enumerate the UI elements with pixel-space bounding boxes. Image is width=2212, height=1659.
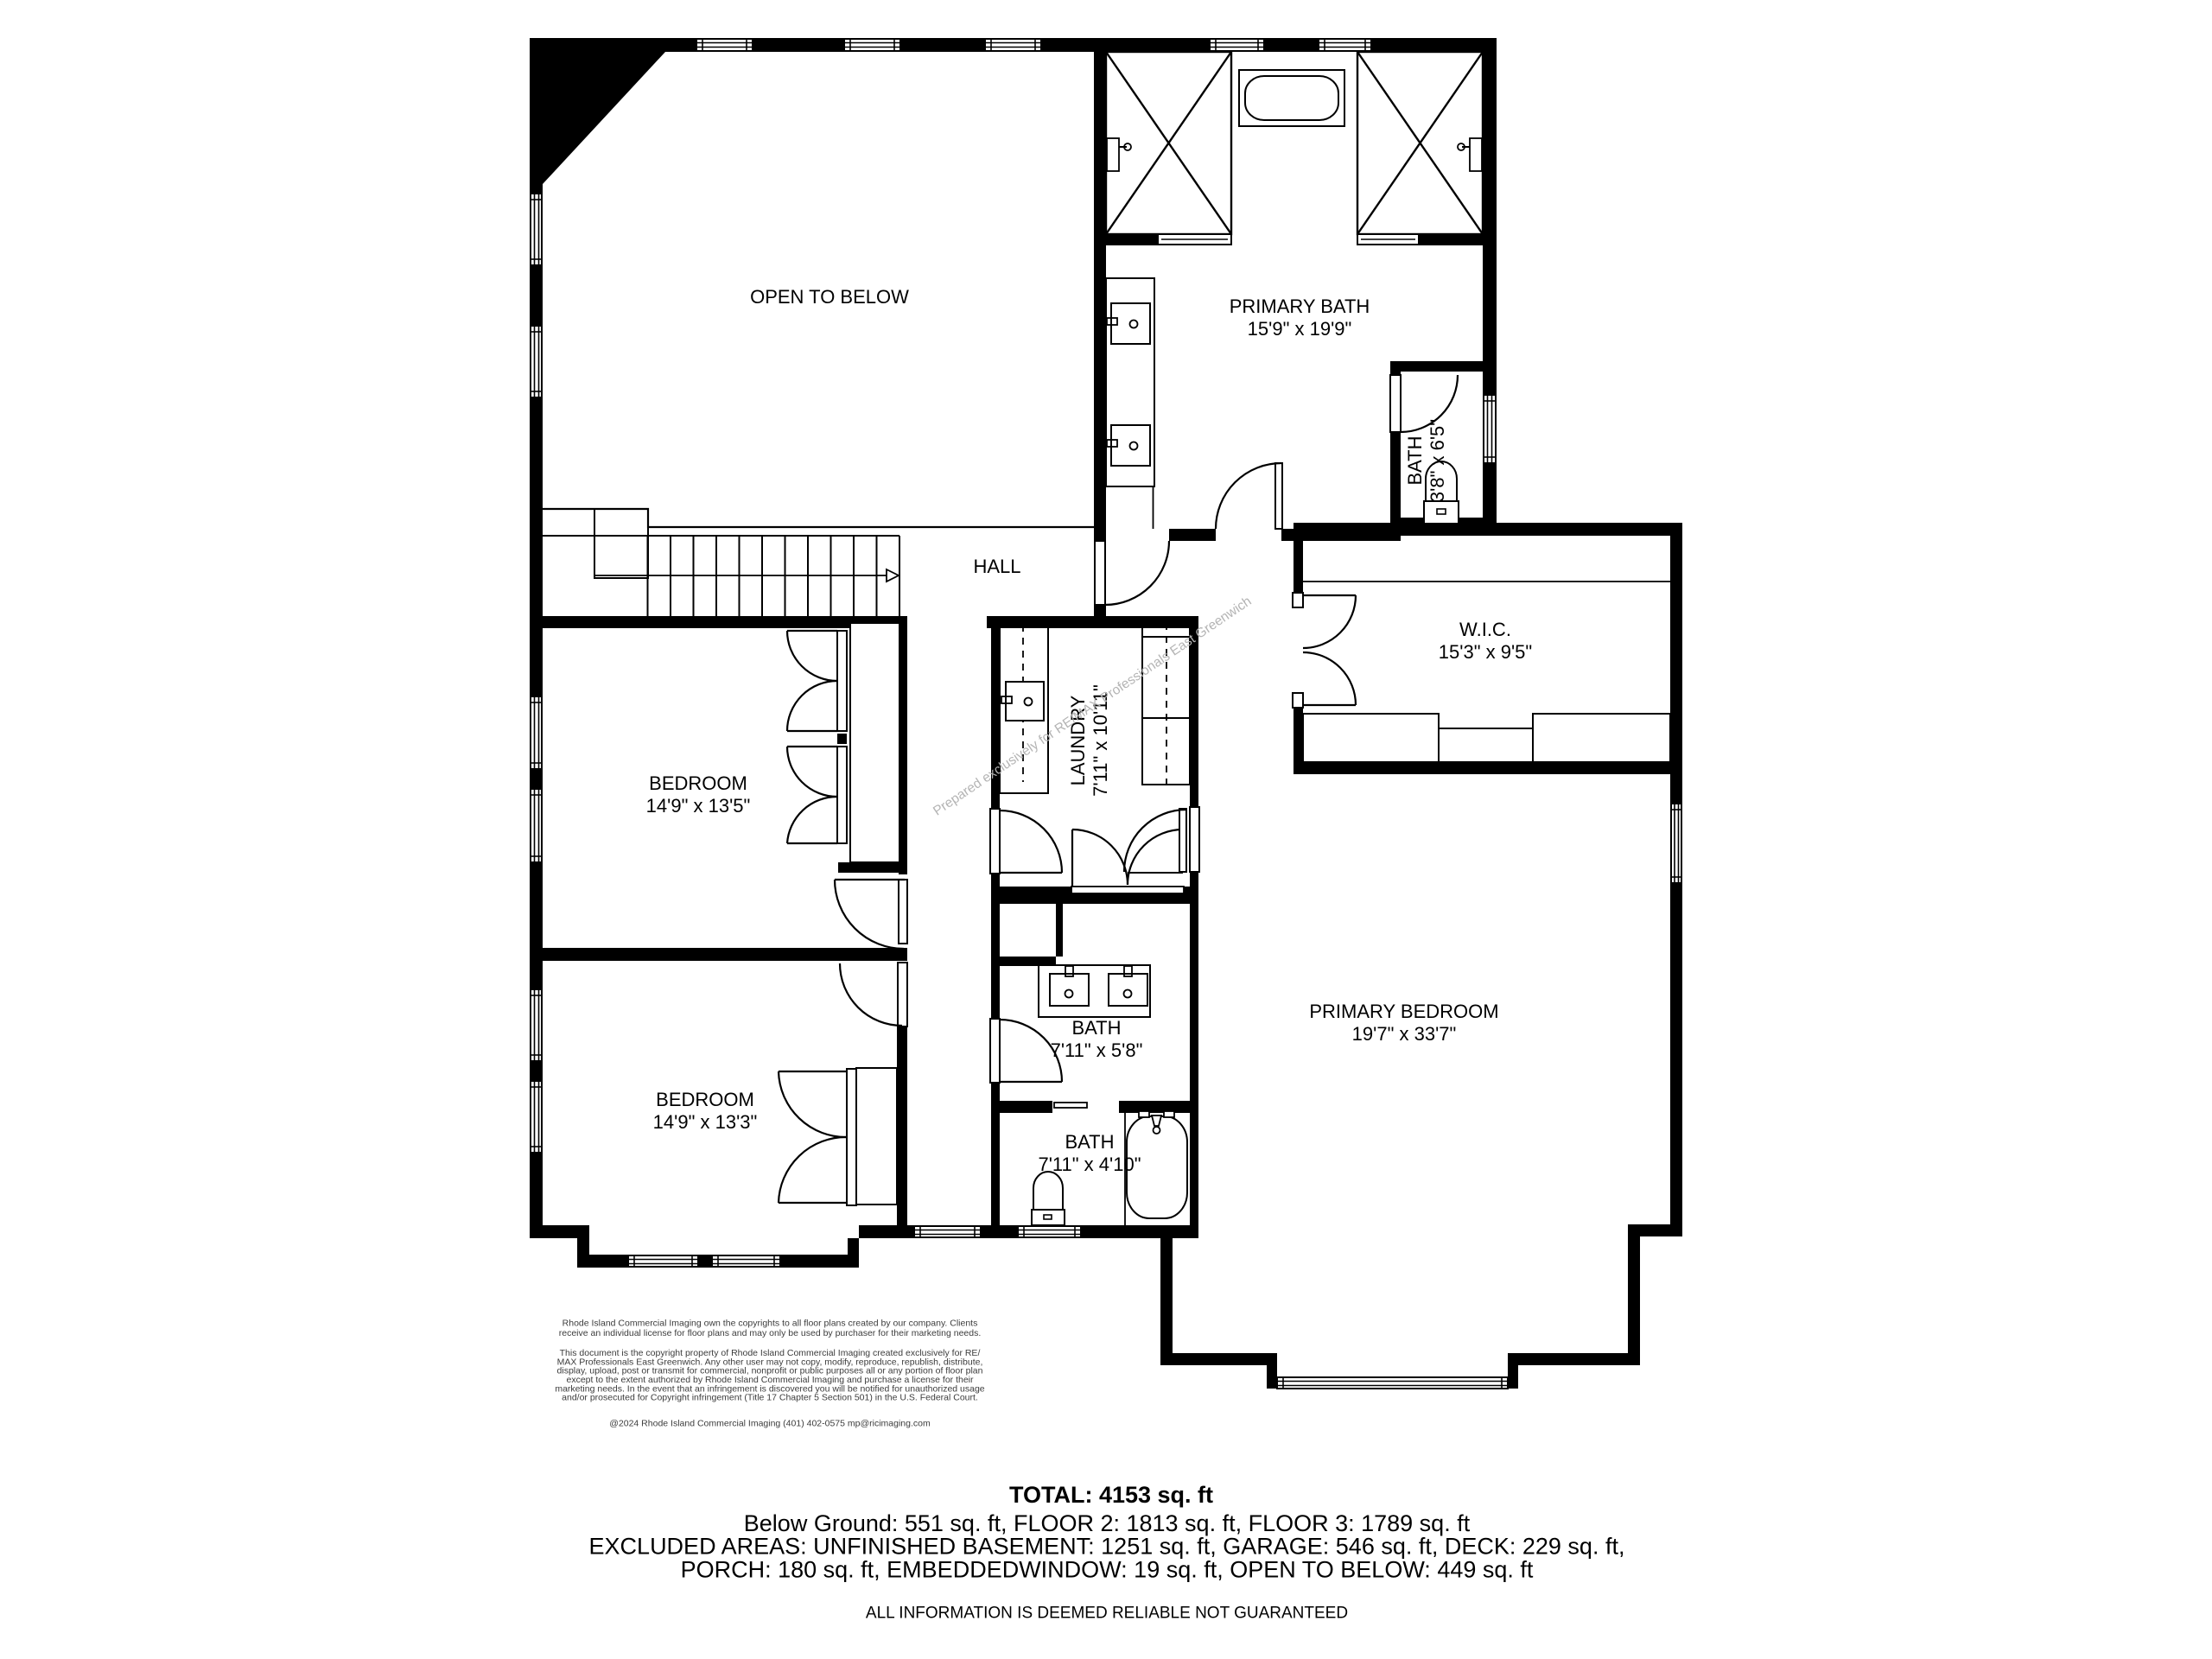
svg-text:@2024 Rhode Island Commercial: @2024 Rhode Island Commercial Imaging (4… <box>609 1419 931 1429</box>
svg-text:receive an individual license: receive an individual license for floor … <box>559 1328 982 1338</box>
svg-text:BATH: BATH <box>1404 435 1426 485</box>
svg-text:EXCLUDED AREAS: UNFINISHED BAS: EXCLUDED AREAS: UNFINISHED BASEMENT: 125… <box>589 1534 1625 1560</box>
svg-text:OPEN TO BELOW: OPEN TO BELOW <box>750 286 909 308</box>
svg-text:15'9" x 19'9": 15'9" x 19'9" <box>1248 318 1352 340</box>
svg-text:15'3" x 9'5": 15'3" x 9'5" <box>1439 641 1532 663</box>
svg-text:PORCH: 180 sq. ft, EMBEDDEDWIN: PORCH: 180 sq. ft, EMBEDDEDWINDOW: 19 sq… <box>681 1557 1534 1583</box>
svg-text:19'7" x 33'7": 19'7" x 33'7" <box>1352 1023 1457 1045</box>
svg-text:Rhode Island Commercial Imagin: Rhode Island Commercial Imaging own the … <box>563 1319 978 1329</box>
svg-text:14'9" x 13'3": 14'9" x 13'3" <box>653 1111 758 1133</box>
svg-text:BATH: BATH <box>1065 1131 1114 1153</box>
svg-text:Below Ground: 551 sq. ft, FLOO: Below Ground: 551 sq. ft, FLOOR 2: 1813 … <box>744 1510 1471 1536</box>
svg-text:BATH: BATH <box>1071 1017 1121 1039</box>
svg-text:3'8" x 6'5": 3'8" x 6'5" <box>1427 419 1448 502</box>
svg-text:7'11" x 5'8": 7'11" x 5'8" <box>1051 1039 1143 1061</box>
svg-text:PRIMARY BATH: PRIMARY BATH <box>1230 296 1370 317</box>
svg-text:and/or prosecuted for Copyrigh: and/or prosecuted for Copyright infringe… <box>562 1393 978 1403</box>
svg-text:W.I.C.: W.I.C. <box>1459 619 1511 640</box>
svg-text:HALL: HALL <box>973 556 1020 577</box>
svg-text:14'9" x 13'5": 14'9" x 13'5" <box>646 795 751 817</box>
svg-text:TOTAL: 4153 sq. ft: TOTAL: 4153 sq. ft <box>1009 1482 1213 1508</box>
svg-text:BEDROOM: BEDROOM <box>649 772 747 794</box>
svg-text:BEDROOM: BEDROOM <box>656 1089 754 1110</box>
svg-text:ALL INFORMATION IS DEEMED RELI: ALL INFORMATION IS DEEMED RELIABLE NOT G… <box>866 1605 1348 1623</box>
svg-text:PRIMARY BEDROOM: PRIMARY BEDROOM <box>1309 1001 1498 1022</box>
